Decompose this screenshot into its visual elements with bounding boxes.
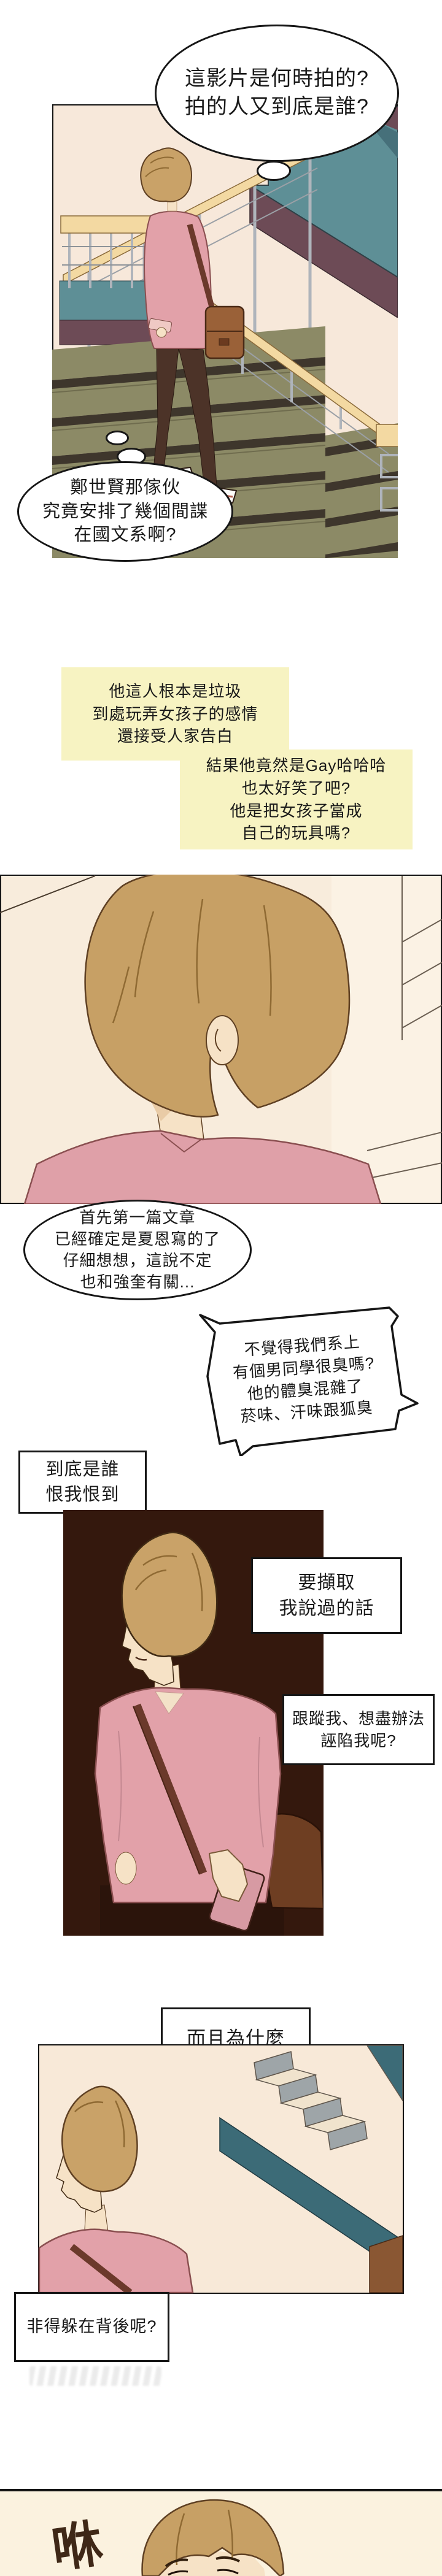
watermark xyxy=(29,2366,161,2386)
spiky-bubble-text: 不覺得我們系上 有個男同學很臭嗎? 他的體臭混雜了 菸味、汗味跟狐臭 xyxy=(177,1294,432,1464)
spiky-bubble: 不覺得我們系上 有個男同學很臭嗎? 他的體臭混雜了 菸味、汗味跟狐臭 xyxy=(182,1303,427,1456)
thought-trail-1 xyxy=(257,161,291,181)
messenger-bag xyxy=(206,307,244,358)
thought-bubble-1: 這影片是何時拍的? 拍的人又到底是誰? xyxy=(155,25,399,162)
panel-closeup xyxy=(0,875,442,1204)
comment-caption-2: 結果他竟然是Gay哈哈哈 也太好笑了吧? 他是把女孩子當成 自己的玩具嗎? xyxy=(180,749,413,849)
panel-stairs2 xyxy=(38,2044,404,2294)
comment-caption-1: 他這人根本是垃圾 到處玩弄女孩子的感情 還接受人家告白 xyxy=(61,667,289,761)
thought-bubble-3: 首先第一篇文章 已經確定是夏恩寫的了 仔細想想，這說不定 也和強奎有關... xyxy=(23,1200,252,1300)
narration-box-3: 跟蹤我、想盡辦法 誣陷我呢? xyxy=(282,1694,435,1765)
sfx-whoosh: 咻 xyxy=(49,2519,106,2576)
ear xyxy=(206,1016,238,1065)
left-hand xyxy=(115,1852,136,1884)
hair xyxy=(141,148,192,201)
comic-page: 這影片是何時拍的? 拍的人又到底是誰? 鄭世賢那傢伙 究竟安排了幾個間諜 在國文… xyxy=(0,0,442,2576)
thought-bubble-2: 鄭世賢那傢伙 究竟安排了幾個間諜 在國文系啊? xyxy=(17,461,233,562)
narration-box-5: 非得躲在背後呢? xyxy=(14,2292,169,2362)
closeup-illustration xyxy=(0,875,442,1204)
stairs2-illustration xyxy=(38,2044,404,2294)
narration-box-1: 到底是誰 恨我恨到 xyxy=(18,1451,147,1514)
thought-trail-2a xyxy=(106,431,129,445)
narration-box-2: 要擷取 我說過的話 xyxy=(251,1557,402,1634)
